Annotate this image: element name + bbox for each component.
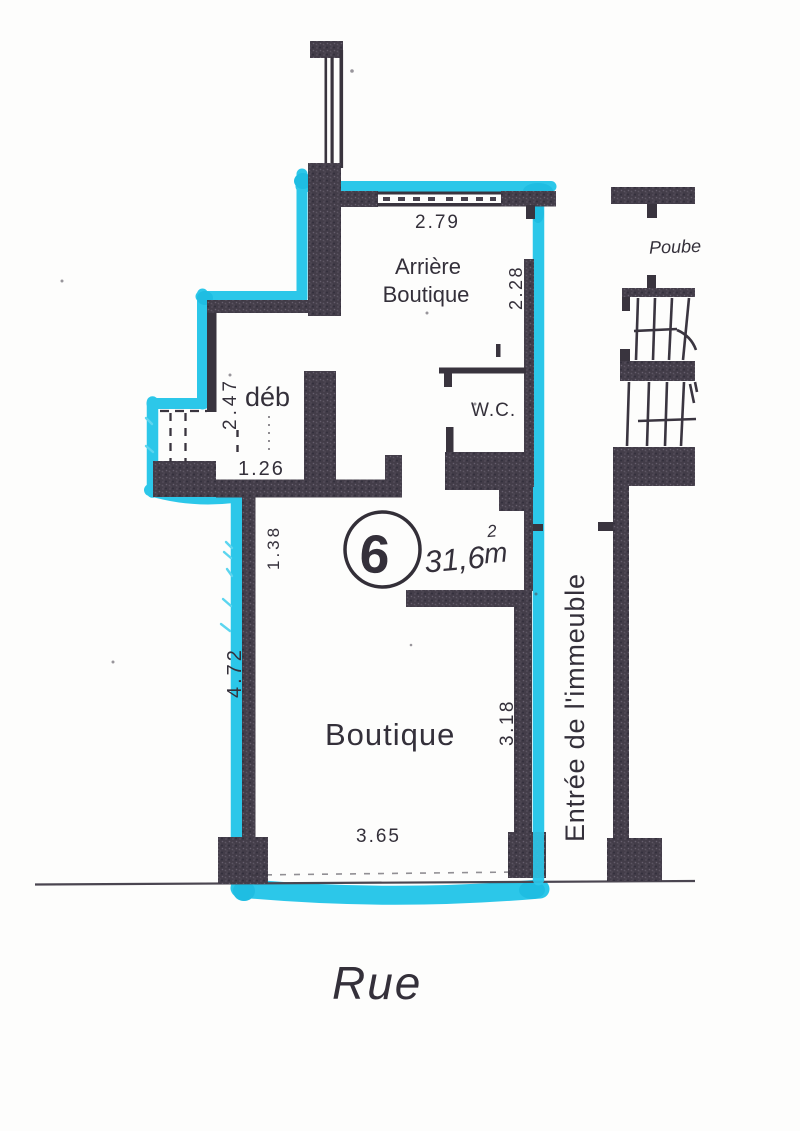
svg-text:3.65: 3.65 bbox=[356, 826, 401, 847]
svg-text:Boutique: Boutique bbox=[383, 282, 470, 307]
svg-text:2.47: 2.47 bbox=[220, 377, 241, 430]
svg-text:m: m bbox=[483, 536, 509, 569]
svg-text:3.18: 3.18 bbox=[497, 699, 518, 746]
svg-text:Boutique: Boutique bbox=[325, 717, 455, 752]
svg-text:Poube: Poube bbox=[649, 236, 702, 258]
svg-text:déb: déb bbox=[245, 382, 290, 412]
svg-text:Arrière: Arrière bbox=[395, 254, 461, 279]
svg-text:2.28: 2.28 bbox=[506, 265, 526, 310]
svg-text:4.72: 4.72 bbox=[224, 647, 246, 698]
svg-text:Entrée de l'immeuble: Entrée de l'immeuble bbox=[560, 573, 590, 842]
svg-text:31,6: 31,6 bbox=[423, 539, 487, 579]
svg-text:1.38: 1.38 bbox=[264, 525, 283, 570]
svg-text:W.C.: W.C. bbox=[471, 400, 516, 421]
svg-text:6: 6 bbox=[358, 524, 392, 586]
svg-text:1.26: 1.26 bbox=[238, 458, 285, 480]
svg-text:Rue: Rue bbox=[332, 957, 422, 1009]
svg-text:2.79: 2.79 bbox=[415, 212, 460, 233]
